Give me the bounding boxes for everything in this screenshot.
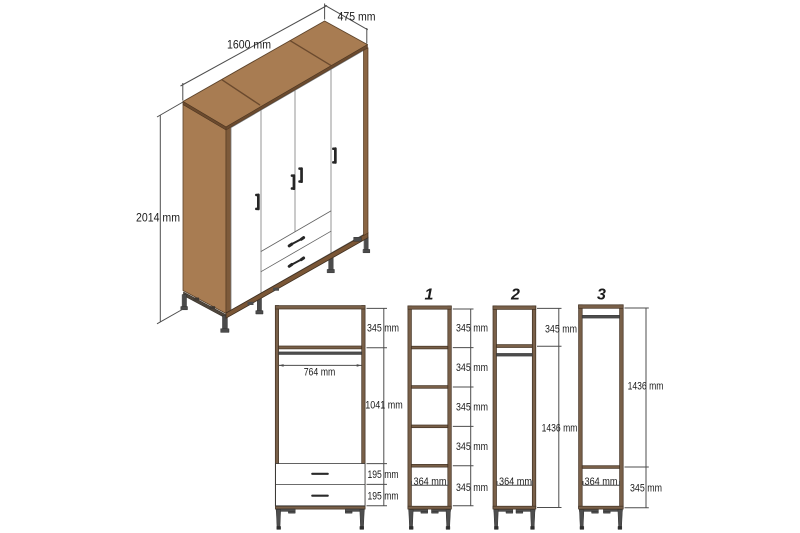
svg-text:195 mm: 195 mm	[368, 469, 399, 481]
svg-text:364 mm: 364 mm	[499, 476, 532, 488]
svg-text:1041 mm: 1041 mm	[365, 400, 403, 412]
svg-text:345 mm: 345 mm	[456, 322, 488, 334]
svg-text:345 mm: 345 mm	[545, 324, 577, 336]
svg-text:3: 3	[597, 287, 606, 304]
svg-text:1436 mm: 1436 mm	[542, 423, 578, 435]
svg-text:1600 mm: 1600 mm	[227, 38, 271, 52]
svg-text:195 mm: 195 mm	[368, 491, 399, 503]
svg-text:364 mm: 364 mm	[414, 476, 447, 488]
svg-text:345 mm: 345 mm	[456, 401, 488, 413]
svg-text:364 mm: 364 mm	[585, 476, 618, 488]
svg-text:1: 1	[425, 287, 434, 304]
svg-text:2014 mm: 2014 mm	[136, 211, 180, 225]
svg-text:345 mm: 345 mm	[456, 482, 488, 494]
svg-text:764 mm: 764 mm	[304, 367, 336, 379]
svg-text:345 mm: 345 mm	[367, 323, 399, 335]
svg-text:1436 mm: 1436 mm	[628, 381, 664, 393]
svg-text:345 mm: 345 mm	[456, 441, 488, 453]
svg-text:345 mm: 345 mm	[630, 483, 662, 495]
svg-text:475 mm: 475 mm	[338, 10, 376, 24]
svg-text:2: 2	[510, 287, 520, 304]
svg-text:345 mm: 345 mm	[456, 362, 488, 374]
